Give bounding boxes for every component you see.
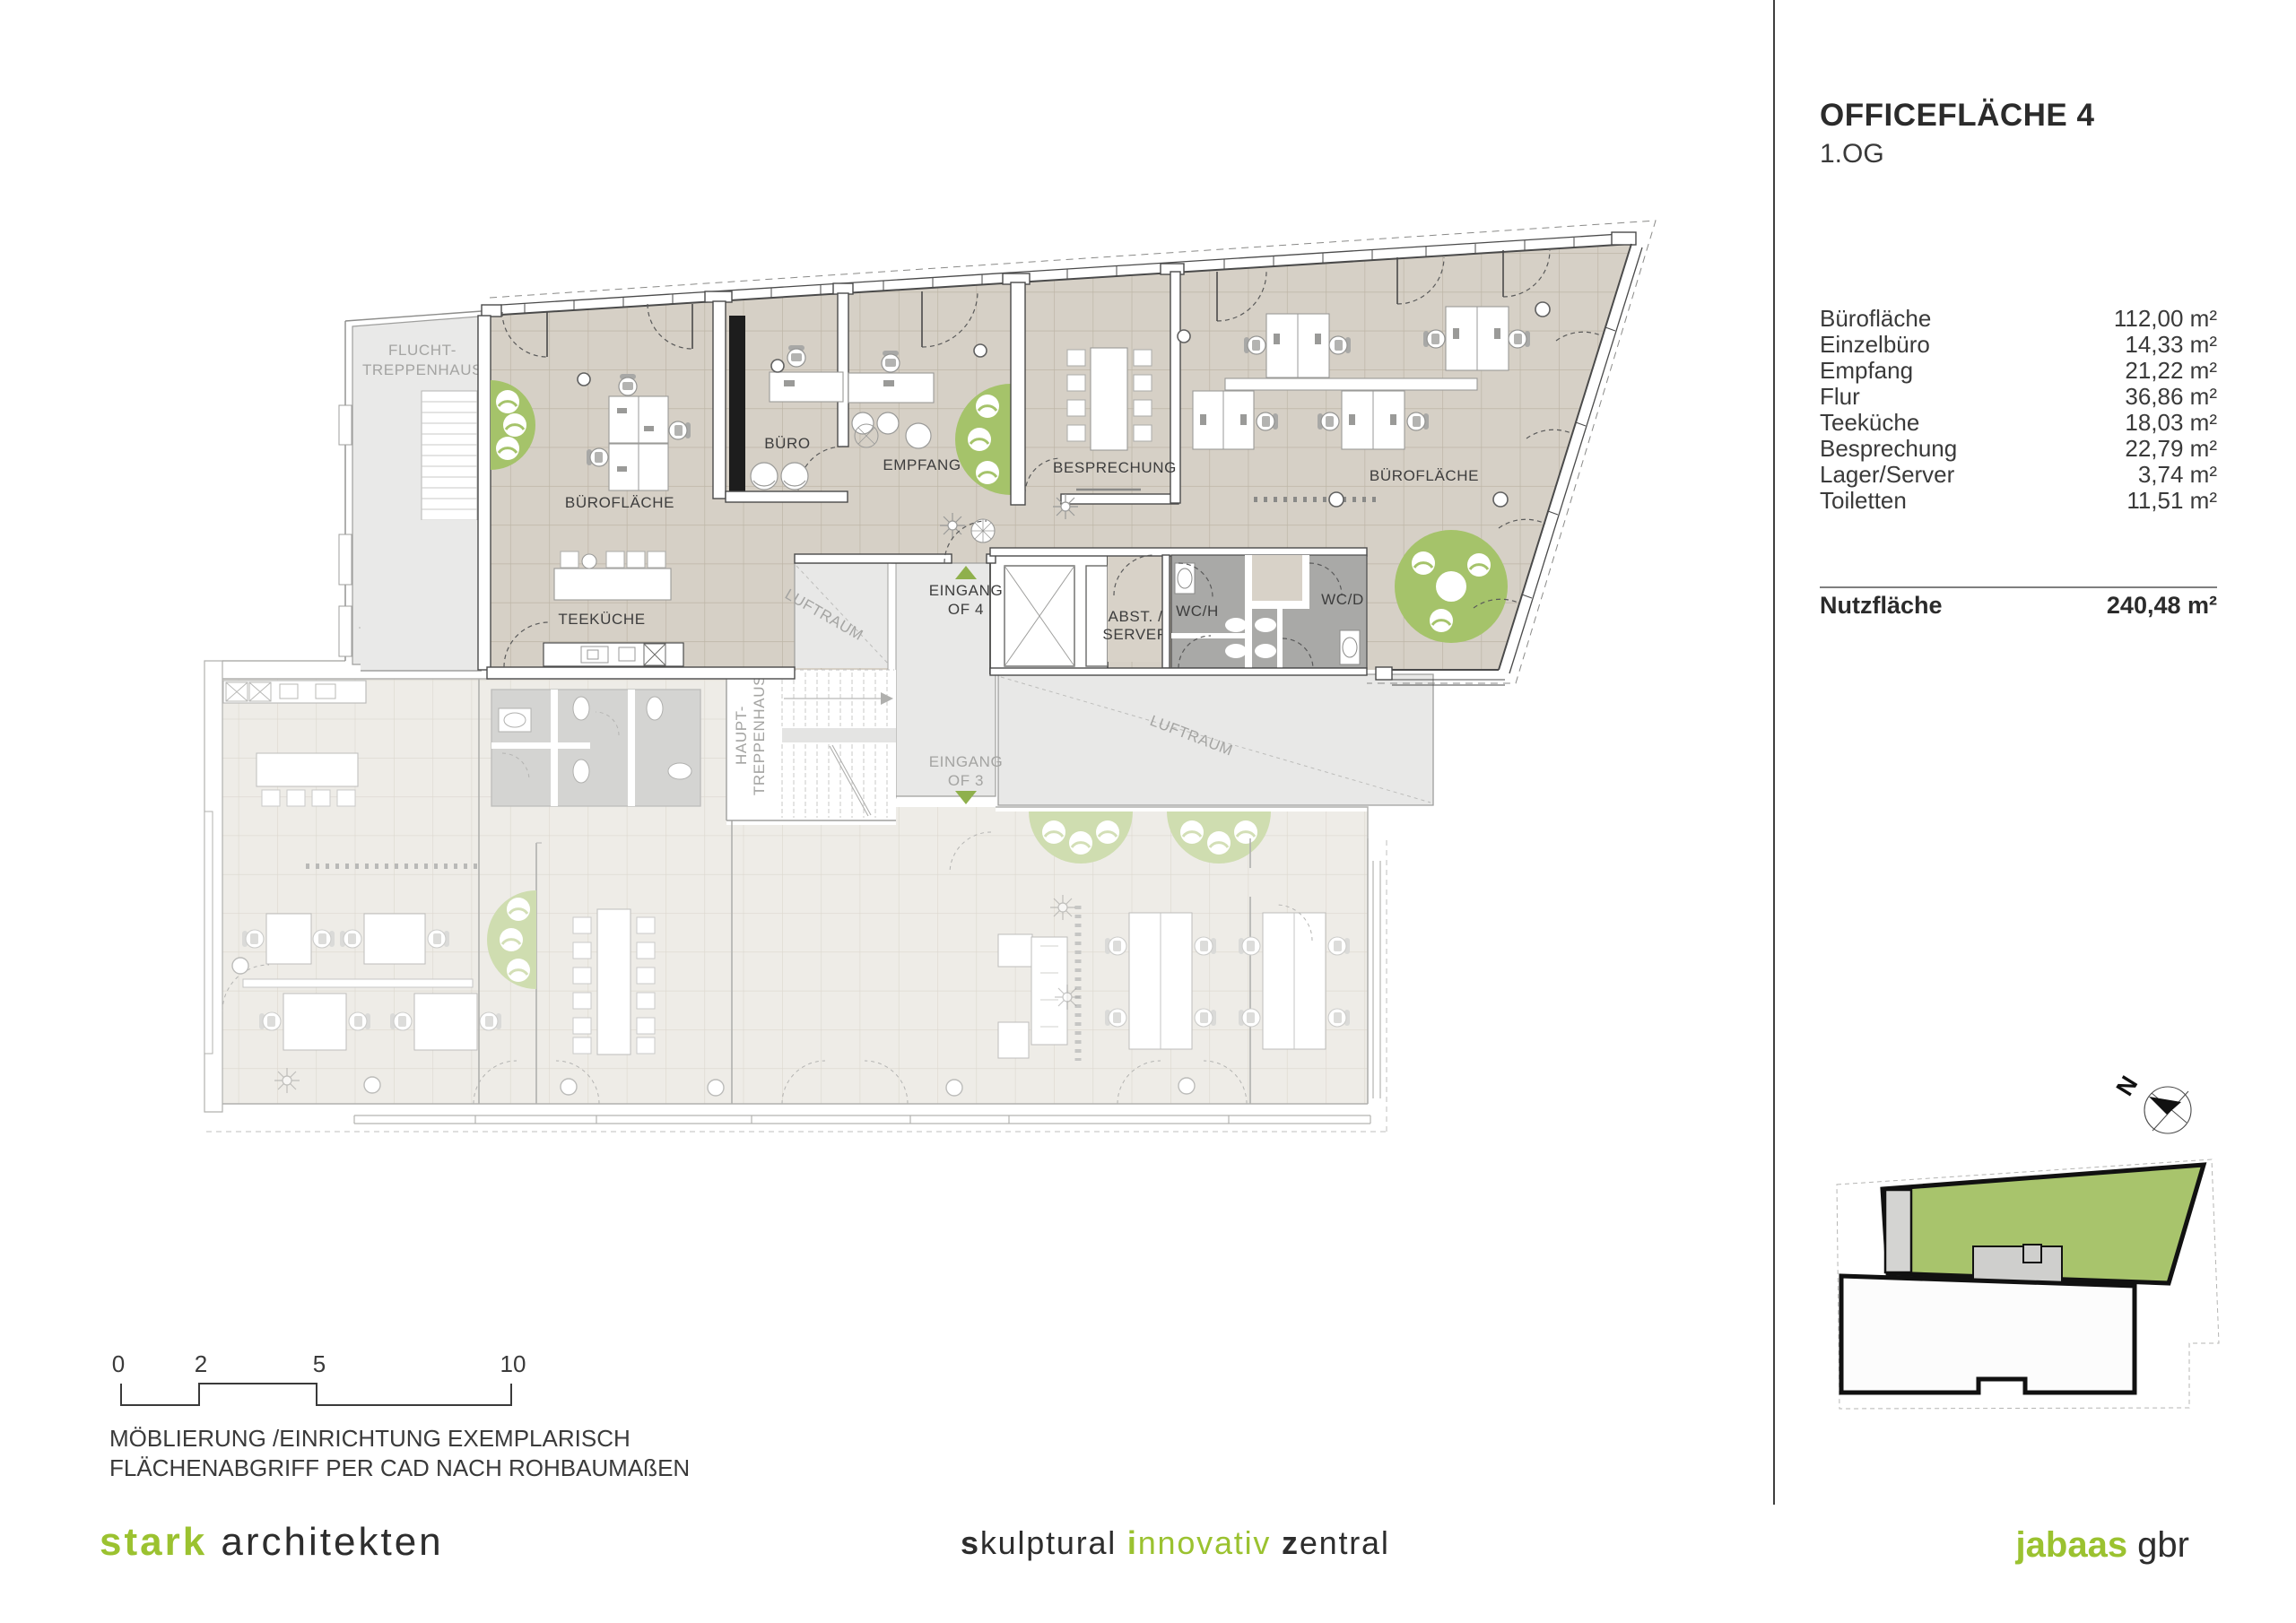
svg-text:TREPPENHAUS: TREPPENHAUS — [362, 361, 483, 378]
svg-text:2: 2 — [195, 1350, 207, 1377]
svg-text:BÜROFLÄCHE: BÜROFLÄCHE — [1370, 467, 1479, 484]
svg-text:112,00 m²: 112,00 m² — [2114, 305, 2217, 332]
svg-text:stark architekten: stark architekten — [100, 1520, 444, 1564]
svg-text:18,03 m²: 18,03 m² — [2125, 409, 2217, 436]
svg-text:EINGANG: EINGANG — [929, 582, 1004, 599]
svg-text:5: 5 — [313, 1350, 326, 1377]
svg-text:240,48 m²: 240,48 m² — [2107, 592, 2217, 619]
svg-text:Besprechung: Besprechung — [1820, 435, 1957, 462]
svg-text:BÜRO: BÜRO — [764, 435, 811, 452]
svg-text:FLÄCHENABGRIFF PER CAD NACH RO: FLÄCHENABGRIFF PER CAD NACH ROHBAUMAßEN — [109, 1454, 690, 1481]
svg-text:OF 4: OF 4 — [948, 601, 984, 618]
svg-text:Bürofläche: Bürofläche — [1820, 305, 1931, 332]
svg-text:22,79 m²: 22,79 m² — [2125, 435, 2217, 462]
svg-text:HAUPT-: HAUPT- — [733, 706, 750, 765]
svg-text:11,51 m²: 11,51 m² — [2126, 487, 2217, 514]
svg-text:WC/D: WC/D — [1321, 591, 1364, 608]
svg-text:21,22 m²: 21,22 m² — [2125, 357, 2217, 384]
svg-text:Toiletten: Toiletten — [1820, 487, 1907, 514]
svg-text:TEEKÜCHE: TEEKÜCHE — [558, 611, 645, 628]
svg-text:WC/H: WC/H — [1176, 603, 1219, 620]
svg-text:1.OG: 1.OG — [1820, 139, 1884, 169]
svg-text:MÖBLIERUNG /EINRICHTUNG EXEMPL: MÖBLIERUNG /EINRICHTUNG EXEMPLARISCH — [109, 1425, 631, 1452]
svg-text:36,86 m²: 36,86 m² — [2125, 383, 2217, 410]
svg-text:skulptural innovativ zentral: skulptural innovativ zentral — [961, 1524, 1390, 1561]
svg-text:BESPRECHUNG: BESPRECHUNG — [1053, 459, 1177, 476]
svg-text:Einzelbüro: Einzelbüro — [1820, 331, 1930, 358]
svg-text:SERVER: SERVER — [1102, 626, 1168, 643]
svg-text:OFFICEFLÄCHE 4: OFFICEFLÄCHE 4 — [1820, 98, 2094, 133]
svg-text:TREPPENHAUS: TREPPENHAUS — [751, 675, 768, 795]
svg-text:0: 0 — [112, 1350, 125, 1377]
svg-text:EINGANG: EINGANG — [929, 753, 1004, 770]
svg-text:Flur: Flur — [1820, 383, 1860, 410]
svg-text:3,74 m²: 3,74 m² — [2138, 461, 2217, 488]
svg-text:OF 3: OF 3 — [948, 772, 984, 789]
svg-text:Lager/Server: Lager/Server — [1820, 461, 1955, 488]
svg-text:FLUCHT-: FLUCHT- — [388, 342, 457, 359]
svg-text:ABST. /: ABST. / — [1109, 608, 1163, 625]
svg-text:14,33 m²: 14,33 m² — [2125, 331, 2217, 358]
svg-text:Teeküche: Teeküche — [1820, 409, 1919, 436]
svg-text:BÜROFLÄCHE: BÜROFLÄCHE — [565, 494, 674, 511]
svg-text:Empfang: Empfang — [1820, 357, 1913, 384]
svg-text:Nutzfläche: Nutzfläche — [1820, 592, 1943, 619]
svg-text:10: 10 — [500, 1350, 526, 1377]
svg-text:jabaas gbr: jabaas gbr — [2015, 1525, 2189, 1565]
svg-text:EMPFANG: EMPFANG — [883, 456, 961, 473]
